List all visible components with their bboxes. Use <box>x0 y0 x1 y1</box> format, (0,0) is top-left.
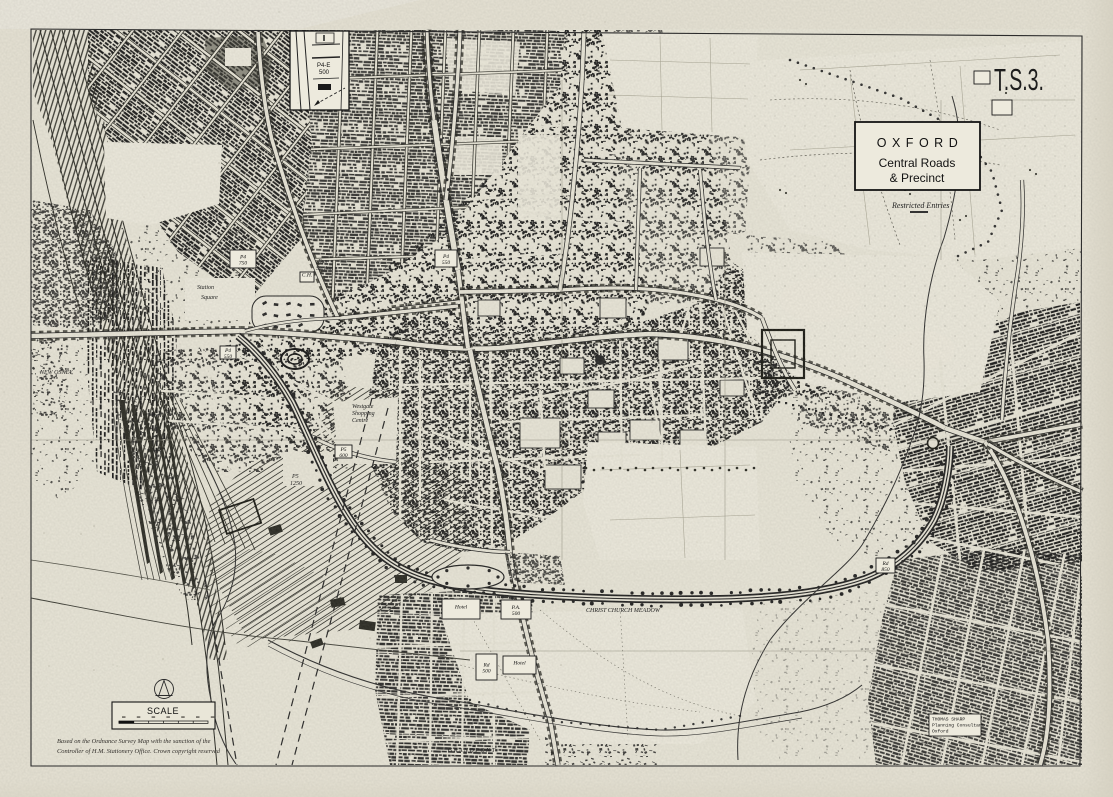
svg-text:Station: Station <box>197 285 214 291</box>
svg-text:Hotel: Hotel <box>512 661 526 667</box>
svg-text:500: 500 <box>319 70 330 76</box>
svg-text:Square: Square <box>201 295 218 301</box>
svg-text:850: 850 <box>881 567 890 573</box>
svg-text:Station: Station <box>316 266 333 272</box>
svg-text:Hotel: Hotel <box>454 605 468 611</box>
svg-text:1250: 1250 <box>290 481 302 487</box>
svg-text:P4-E: P4-E <box>317 63 330 69</box>
svg-text:Centre: Centre <box>352 418 368 424</box>
svg-text:Planning Consultant: Planning Consultant <box>932 723 985 729</box>
svg-text:THOMAS SHARP: THOMAS SHARP <box>932 717 965 723</box>
svg-text:Controller of H.M. Stationery: Controller of H.M. Stationery Office. Cr… <box>57 748 221 755</box>
svg-text:CHRIST CHURCH MEADOW: CHRIST CHURCH MEADOW <box>586 608 661 614</box>
svg-text:SCALE: SCALE <box>147 706 179 716</box>
svg-text:P4: P4 <box>442 253 449 260</box>
svg-text:500: 500 <box>512 611 521 617</box>
svg-text:P5: P5 <box>291 474 299 480</box>
svg-text:NEW OSNEY: NEW OSNEY <box>39 370 73 376</box>
svg-text:T.S.3.: T.S.3. <box>994 62 1044 97</box>
svg-text:500: 500 <box>482 669 491 675</box>
svg-text:550: 550 <box>224 354 233 360</box>
svg-text:C.H.: C.H. <box>302 273 312 279</box>
svg-text:Central Roads: Central Roads <box>879 156 956 170</box>
svg-text:P4: P4 <box>239 254 246 261</box>
svg-text:Shopping: Shopping <box>352 411 375 417</box>
svg-text:G R A N D P O N T: G R A N D P O N T <box>448 748 496 754</box>
svg-text:600: 600 <box>339 453 348 459</box>
svg-text:Westgate: Westgate <box>352 404 374 410</box>
svg-text:750: 750 <box>239 261 248 267</box>
svg-text:& Precinct: & Precinct <box>890 171 945 185</box>
svg-text:Oxford: Oxford <box>932 729 949 735</box>
svg-text:550: 550 <box>442 260 451 266</box>
svg-text:Bus: Bus <box>318 259 328 265</box>
svg-text:OXFORD: OXFORD <box>877 136 963 150</box>
svg-text:Restricted Entries: Restricted Entries <box>891 201 950 210</box>
svg-text:P4: P4 <box>224 347 231 354</box>
svg-text:Based on the Ordnance Survey M: Based on the Ordnance Survey Map with th… <box>57 738 211 745</box>
